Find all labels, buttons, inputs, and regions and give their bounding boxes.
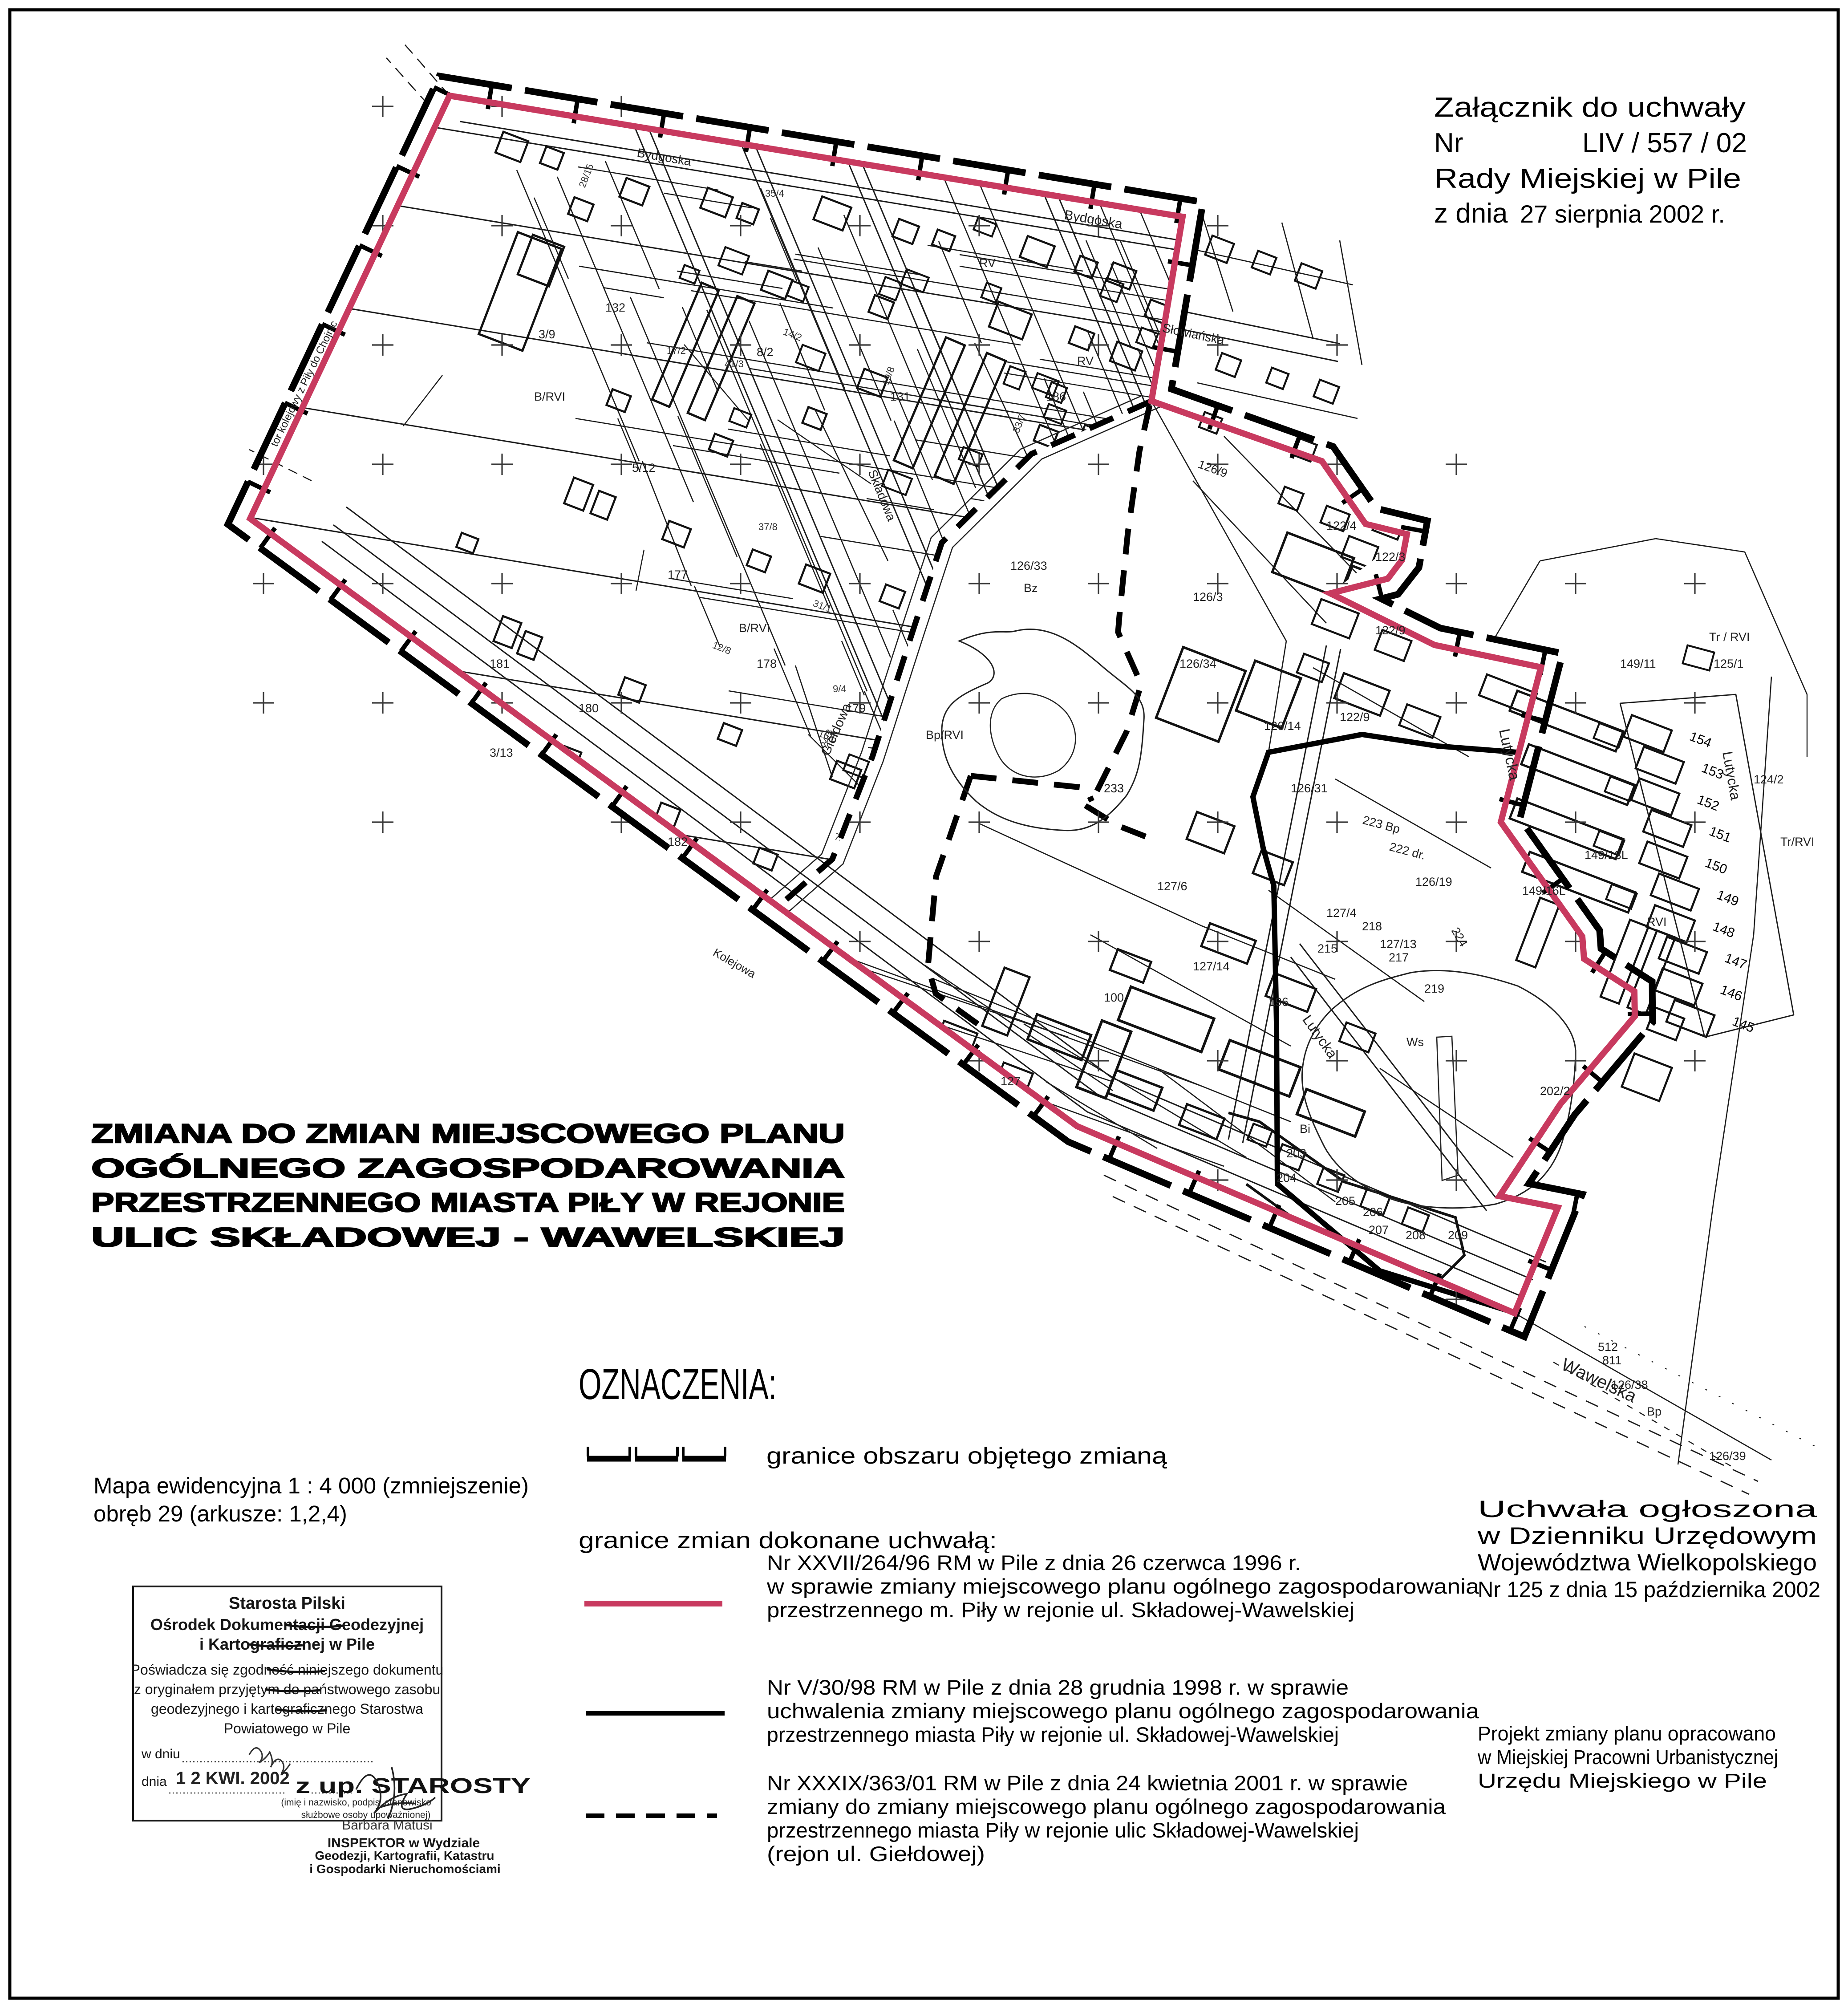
svg-text:RV: RV: [979, 256, 996, 270]
svg-text:w Dzienniku Urzędowym: w Dzienniku Urzędowym: [1477, 1523, 1817, 1549]
svg-text:122/9: 122/9: [1375, 624, 1406, 637]
svg-text:126/19: 126/19: [1415, 875, 1452, 888]
svg-text:B/RVI: B/RVI: [739, 621, 770, 635]
svg-text:207: 207: [1369, 1223, 1389, 1237]
svg-text:37/8: 37/8: [758, 521, 778, 532]
svg-text:218: 218: [1362, 920, 1382, 933]
svg-text:Nr V/30/98 RM w Pile z dnia 28: Nr V/30/98 RM w Pile z dnia 28 grudnia 1…: [767, 1675, 1349, 1699]
svg-text:w Miejskiej Pracowni Urbanisty: w Miejskiej Pracowni Urbanistycznej: [1477, 1746, 1778, 1769]
svg-text:17/2: 17/2: [667, 345, 686, 356]
svg-text:i Gospodarki Nieruchomościami: i Gospodarki Nieruchomościami: [309, 1862, 500, 1876]
svg-text:122/4: 122/4: [1326, 519, 1357, 532]
svg-text:124/2: 124/2: [1754, 773, 1784, 786]
svg-text:41/3: 41/3: [725, 358, 744, 369]
svg-text:Poświadcza się zgodność niniej: Poświadcza się zgodność niniejszego doku…: [131, 1662, 444, 1678]
svg-text:Projekt zmiany planu opracowan: Projekt zmiany planu opracowano: [1478, 1722, 1776, 1745]
svg-text:w sprawie zmiany miejscowego p: w sprawie zmiany miejscowego planu ogóln…: [766, 1574, 1479, 1598]
svg-text:Starosta Pilski: Starosta Pilski: [229, 1594, 345, 1613]
svg-text:Załącznik do uchwały: Załącznik do uchwały: [1434, 92, 1746, 123]
svg-text:przestrzennego m. Piły w rejon: przestrzennego m. Piły w rejonie ul. Skł…: [767, 1598, 1354, 1622]
svg-text:177: 177: [668, 568, 688, 581]
svg-text:126/39: 126/39: [1709, 1449, 1746, 1463]
svg-text:Bp: Bp: [1647, 1405, 1662, 1418]
svg-text:zmiany do zmiany miejscowego p: zmiany do zmiany miejscowego planu ogóln…: [767, 1795, 1446, 1818]
svg-text:203: 203: [1286, 1147, 1306, 1160]
svg-text:3/9: 3/9: [539, 328, 555, 341]
svg-text:125/1: 125/1: [1714, 657, 1744, 670]
svg-text:206: 206: [1363, 1205, 1383, 1219]
svg-text:209: 209: [1448, 1229, 1468, 1242]
svg-text:122/3: 122/3: [1375, 550, 1406, 564]
svg-text:178: 178: [757, 657, 777, 670]
svg-text:5/12: 5/12: [632, 461, 656, 475]
svg-text:127/14: 127/14: [1193, 960, 1230, 973]
svg-text:8/2: 8/2: [757, 345, 774, 359]
svg-text:OZNACZENIA:: OZNACZENIA:: [579, 1360, 777, 1408]
svg-text:Bz: Bz: [1024, 581, 1038, 595]
svg-text:122/9: 122/9: [1340, 710, 1370, 724]
svg-text:uchwalenia zmiany miejscowego: uchwalenia zmiany miejscowego planu ogól…: [767, 1699, 1479, 1723]
svg-text:1 2 KWI. 2002: 1 2 KWI. 2002: [176, 1769, 290, 1788]
svg-text:geodezyjnego i kartograficzneg: geodezyjnego i kartograficznego Starostw…: [151, 1701, 423, 1717]
svg-text:186: 186: [1046, 390, 1066, 403]
svg-text:9/4: 9/4: [833, 683, 847, 694]
svg-text:Tr / RVI: Tr / RVI: [1709, 630, 1750, 644]
svg-text:181: 181: [490, 657, 510, 670]
svg-text:OGÓLNEGO ZAGOSPODAROWANIA: OGÓLNEGO ZAGOSPODAROWANIA: [91, 1153, 845, 1183]
svg-text:Nr XXXIX/363/01 RM w Pile z dn: Nr XXXIX/363/01 RM w Pile z dnia 24 kwie…: [767, 1771, 1408, 1795]
svg-text:granice zmian dokonane uchwałą: granice zmian dokonane uchwałą:: [579, 1528, 997, 1554]
svg-text:27 sierpnia 2002 r.: 27 sierpnia 2002 r.: [1520, 200, 1725, 228]
svg-text:219: 219: [1424, 982, 1444, 995]
svg-text:(rejon ul. Giełdowej): (rejon ul. Giełdowej): [767, 1842, 985, 1866]
svg-text:202/2: 202/2: [1540, 1084, 1570, 1098]
svg-text:i Kartograficznej w Pile: i Kartograficznej w Pile: [199, 1635, 375, 1653]
svg-text:126/33: 126/33: [1010, 559, 1047, 572]
svg-text:35/4: 35/4: [765, 188, 784, 199]
svg-text:Nr 125 z dnia 15 października: Nr 125 z dnia 15 października 2002: [1478, 1577, 1820, 1602]
svg-text:Nr XXVII/264/96 RM w Pile z dn: Nr XXVII/264/96 RM w Pile z dnia 26 czer…: [767, 1551, 1301, 1574]
svg-text:126/31: 126/31: [1291, 782, 1328, 795]
svg-text:Województwa Wielkopolskiego: Województwa Wielkopolskiego: [1478, 1550, 1817, 1576]
svg-text:132: 132: [605, 301, 625, 314]
svg-text:ZMIANA DO ZMIAN MIEJSCOWEGO PL: ZMIANA DO ZMIAN MIEJSCOWEGO PLANU: [91, 1119, 845, 1148]
svg-text:126/38: 126/38: [1611, 1378, 1648, 1391]
svg-text:obręb 29 (arkusze: 1,2,4): obręb 29 (arkusze: 1,2,4): [93, 1501, 347, 1526]
svg-text:Tr/RVI: Tr/RVI: [1780, 835, 1815, 848]
svg-text:131: 131: [890, 390, 910, 403]
svg-text:Mapa ewidencyjna 1 : 4 000 (zm: Mapa ewidencyjna 1 : 4 000 (zmniejszenie…: [93, 1473, 529, 1498]
svg-text:PRZESTRZENNEGO MIASTA PIŁY W R: PRZESTRZENNEGO MIASTA PIŁY W REJONIE: [91, 1188, 845, 1217]
svg-text:B/RVI: B/RVI: [534, 390, 565, 403]
svg-text:180: 180: [579, 702, 599, 715]
svg-text:z oryginałem przyjętym do pańs: z oryginałem przyjętym do państwowego za…: [134, 1681, 440, 1697]
svg-text:149/13L: 149/13L: [1585, 848, 1628, 862]
svg-text:przestrzennego miasta Piły w r: przestrzennego miasta Piły w rejonie uli…: [767, 1818, 1359, 1842]
svg-text:215: 215: [1317, 942, 1337, 955]
svg-text:208: 208: [1406, 1229, 1426, 1242]
svg-text:179: 179: [846, 702, 866, 715]
svg-text:204: 204: [1277, 1171, 1297, 1185]
svg-text:205: 205: [1335, 1194, 1355, 1208]
svg-text:811: 811: [1602, 1354, 1621, 1367]
svg-text:149/16L: 149/16L: [1522, 884, 1566, 897]
svg-text:512: 512: [1598, 1340, 1618, 1354]
svg-text:127/4: 127/4: [1326, 906, 1357, 920]
svg-text:Bp/RVI: Bp/RVI: [926, 728, 964, 742]
svg-text:LIV / 557 / 02: LIV / 557 / 02: [1582, 128, 1747, 158]
svg-text:w dniu: w dniu: [141, 1747, 180, 1761]
svg-text:Barbara Matusi: Barbara Matusi: [342, 1818, 432, 1833]
svg-text:granice obszaru objętego zmian: granice obszaru objętego zmianą: [766, 1443, 1167, 1469]
svg-text:127/13: 127/13: [1380, 937, 1417, 951]
svg-text:233: 233: [1104, 782, 1124, 795]
svg-text:196: 196: [1268, 995, 1289, 1009]
svg-text:dnia: dnia: [142, 1774, 167, 1789]
svg-text:182: 182: [668, 835, 688, 848]
svg-text:126/3: 126/3: [1193, 590, 1223, 604]
svg-text:ULIC SKŁADOWEJ - WAWELSKIEJ: ULIC SKŁADOWEJ - WAWELSKIEJ: [91, 1222, 845, 1252]
svg-text:3/13: 3/13: [490, 746, 513, 759]
svg-text:126/14: 126/14: [1264, 719, 1301, 733]
svg-text:Urzędu Miejskiego w Pile: Urzędu Miejskiego w Pile: [1478, 1769, 1767, 1792]
svg-text:Bi: Bi: [1300, 1122, 1310, 1136]
svg-text:217: 217: [1389, 951, 1409, 964]
svg-text:100: 100: [1104, 991, 1124, 1004]
svg-text:RVI: RVI: [1647, 915, 1667, 929]
svg-text:z up. STAROSTY: z up. STAROSTY: [296, 1774, 531, 1798]
svg-text:127: 127: [1001, 1075, 1021, 1088]
svg-text:Geodezji, Kartografii, Katastr: Geodezji, Kartografii, Katastru: [315, 1849, 494, 1862]
svg-text:Nr: Nr: [1434, 128, 1463, 158]
svg-text:127/6: 127/6: [1157, 880, 1187, 893]
svg-text:Uchwała ogłoszona: Uchwała ogłoszona: [1478, 1496, 1817, 1522]
svg-text:przestrzennego miasta Piły w r: przestrzennego miasta Piły w rejonie ul.…: [767, 1723, 1339, 1746]
svg-text:Powiatowego w Pile: Powiatowego w Pile: [224, 1720, 351, 1736]
svg-text:z dnia: z dnia: [1434, 198, 1508, 229]
svg-text:Ws: Ws: [1406, 1035, 1424, 1049]
svg-text:149/11: 149/11: [1620, 657, 1656, 670]
svg-text:126/34: 126/34: [1179, 657, 1216, 670]
svg-text:RV: RV: [1077, 354, 1094, 368]
svg-text:Rady Miejskiej w Pile: Rady Miejskiej w Pile: [1434, 163, 1741, 194]
